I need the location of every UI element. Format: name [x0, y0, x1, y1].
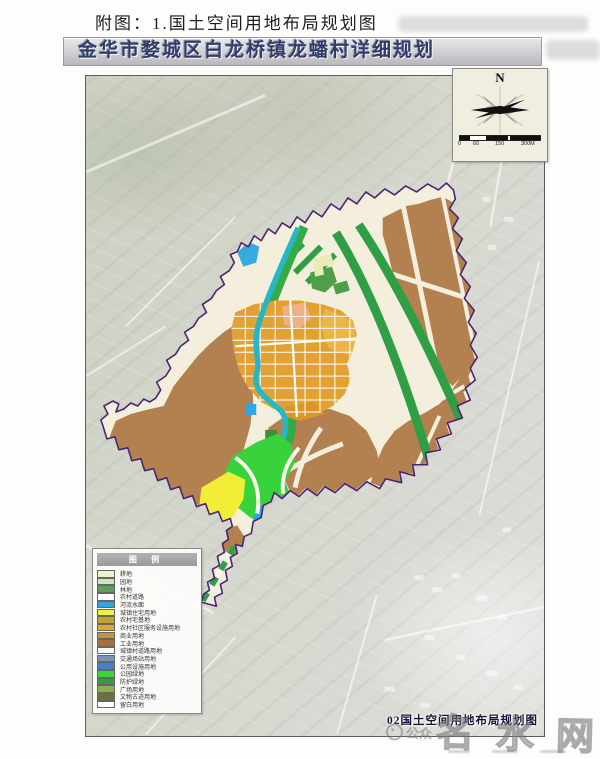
legend-color-chip [97, 616, 115, 624]
map-title-text: 金华市婺城区白龙桥镇龙蟠村详细规划 [64, 38, 541, 64]
legend-item: 林地 [97, 585, 197, 593]
legend-color-chip [97, 655, 115, 663]
legend-color-chip [97, 624, 115, 632]
legend-item: 农村道路 [97, 593, 197, 601]
watermark-dash [492, 750, 518, 753]
legend-item: 公园绿地 [97, 670, 197, 678]
legend-color-chip [97, 585, 115, 593]
legend-color-chip [97, 678, 115, 686]
map-panel: N [85, 75, 545, 737]
legend-item: 商业用地 [97, 632, 197, 640]
page-title: 附图：1.国土空间用地布局规划图 [95, 9, 378, 34]
legend-box: 图 例 耕地园地林地农村道路河流水面城镇住宅用地农村宅基地农村社区服务设施用地商… [92, 548, 202, 714]
scale-bar: 0 60 150 300M [459, 135, 541, 149]
legend-item: 耕地 [97, 570, 197, 578]
legend-color-chip [97, 609, 115, 617]
legend-color-chip [97, 632, 115, 640]
scale-tick: 300M [521, 141, 535, 147]
scale-tick: 0 [458, 141, 461, 147]
map-title-bar: 金华市婺城区白龙桥镇龙蟠村详细规划 [63, 37, 542, 66]
legend-color-chip [97, 570, 115, 578]
compass-box: N [452, 68, 548, 162]
watermark-dash [448, 750, 470, 753]
pond-patch [245, 404, 256, 415]
legend-color-chip [97, 662, 115, 670]
scale-tick: 150 [495, 141, 504, 147]
legend-item: 公用设施用地 [97, 662, 197, 670]
map-caption: 02国土空间用地布局规划图 [387, 712, 538, 728]
legend-item: 农村社区服务设施用地 [97, 624, 197, 632]
legend-items: 耕地园地林地农村道路河流水面城镇住宅用地农村宅基地农村社区服务设施用地商业用地工… [97, 570, 197, 708]
scale-tick: 60 [473, 141, 479, 147]
legend-item: 留白用地 [97, 701, 197, 709]
legend-color-chip [97, 670, 115, 678]
legend-color-chip [97, 639, 115, 647]
watermark-dash [540, 750, 566, 753]
scan-smudge [398, 16, 588, 32]
legend-color-chip [97, 578, 115, 586]
legend-color-chip [97, 601, 115, 609]
north-label: N [453, 71, 547, 85]
legend-color-chip [97, 647, 115, 655]
legend-item: 园地 [97, 578, 197, 586]
compass-rose-icon [468, 86, 532, 134]
scanned-plan-page: 附图：1.国土空间用地布局规划图 金华市婺城区白龙桥镇龙蟠村详细规划 [0, 0, 600, 759]
legend-color-chip [97, 685, 115, 693]
legend-item: 防护绿地 [97, 678, 197, 686]
legend-item: 文物古迹用地 [97, 693, 197, 701]
legend-color-chip [97, 593, 115, 601]
legend-title: 图 例 [97, 553, 197, 566]
legend-color-chip [97, 693, 115, 701]
scan-smudge [546, 40, 600, 60]
legend-color-chip [97, 701, 115, 709]
legend-item-label: 留白用地 [120, 700, 144, 709]
